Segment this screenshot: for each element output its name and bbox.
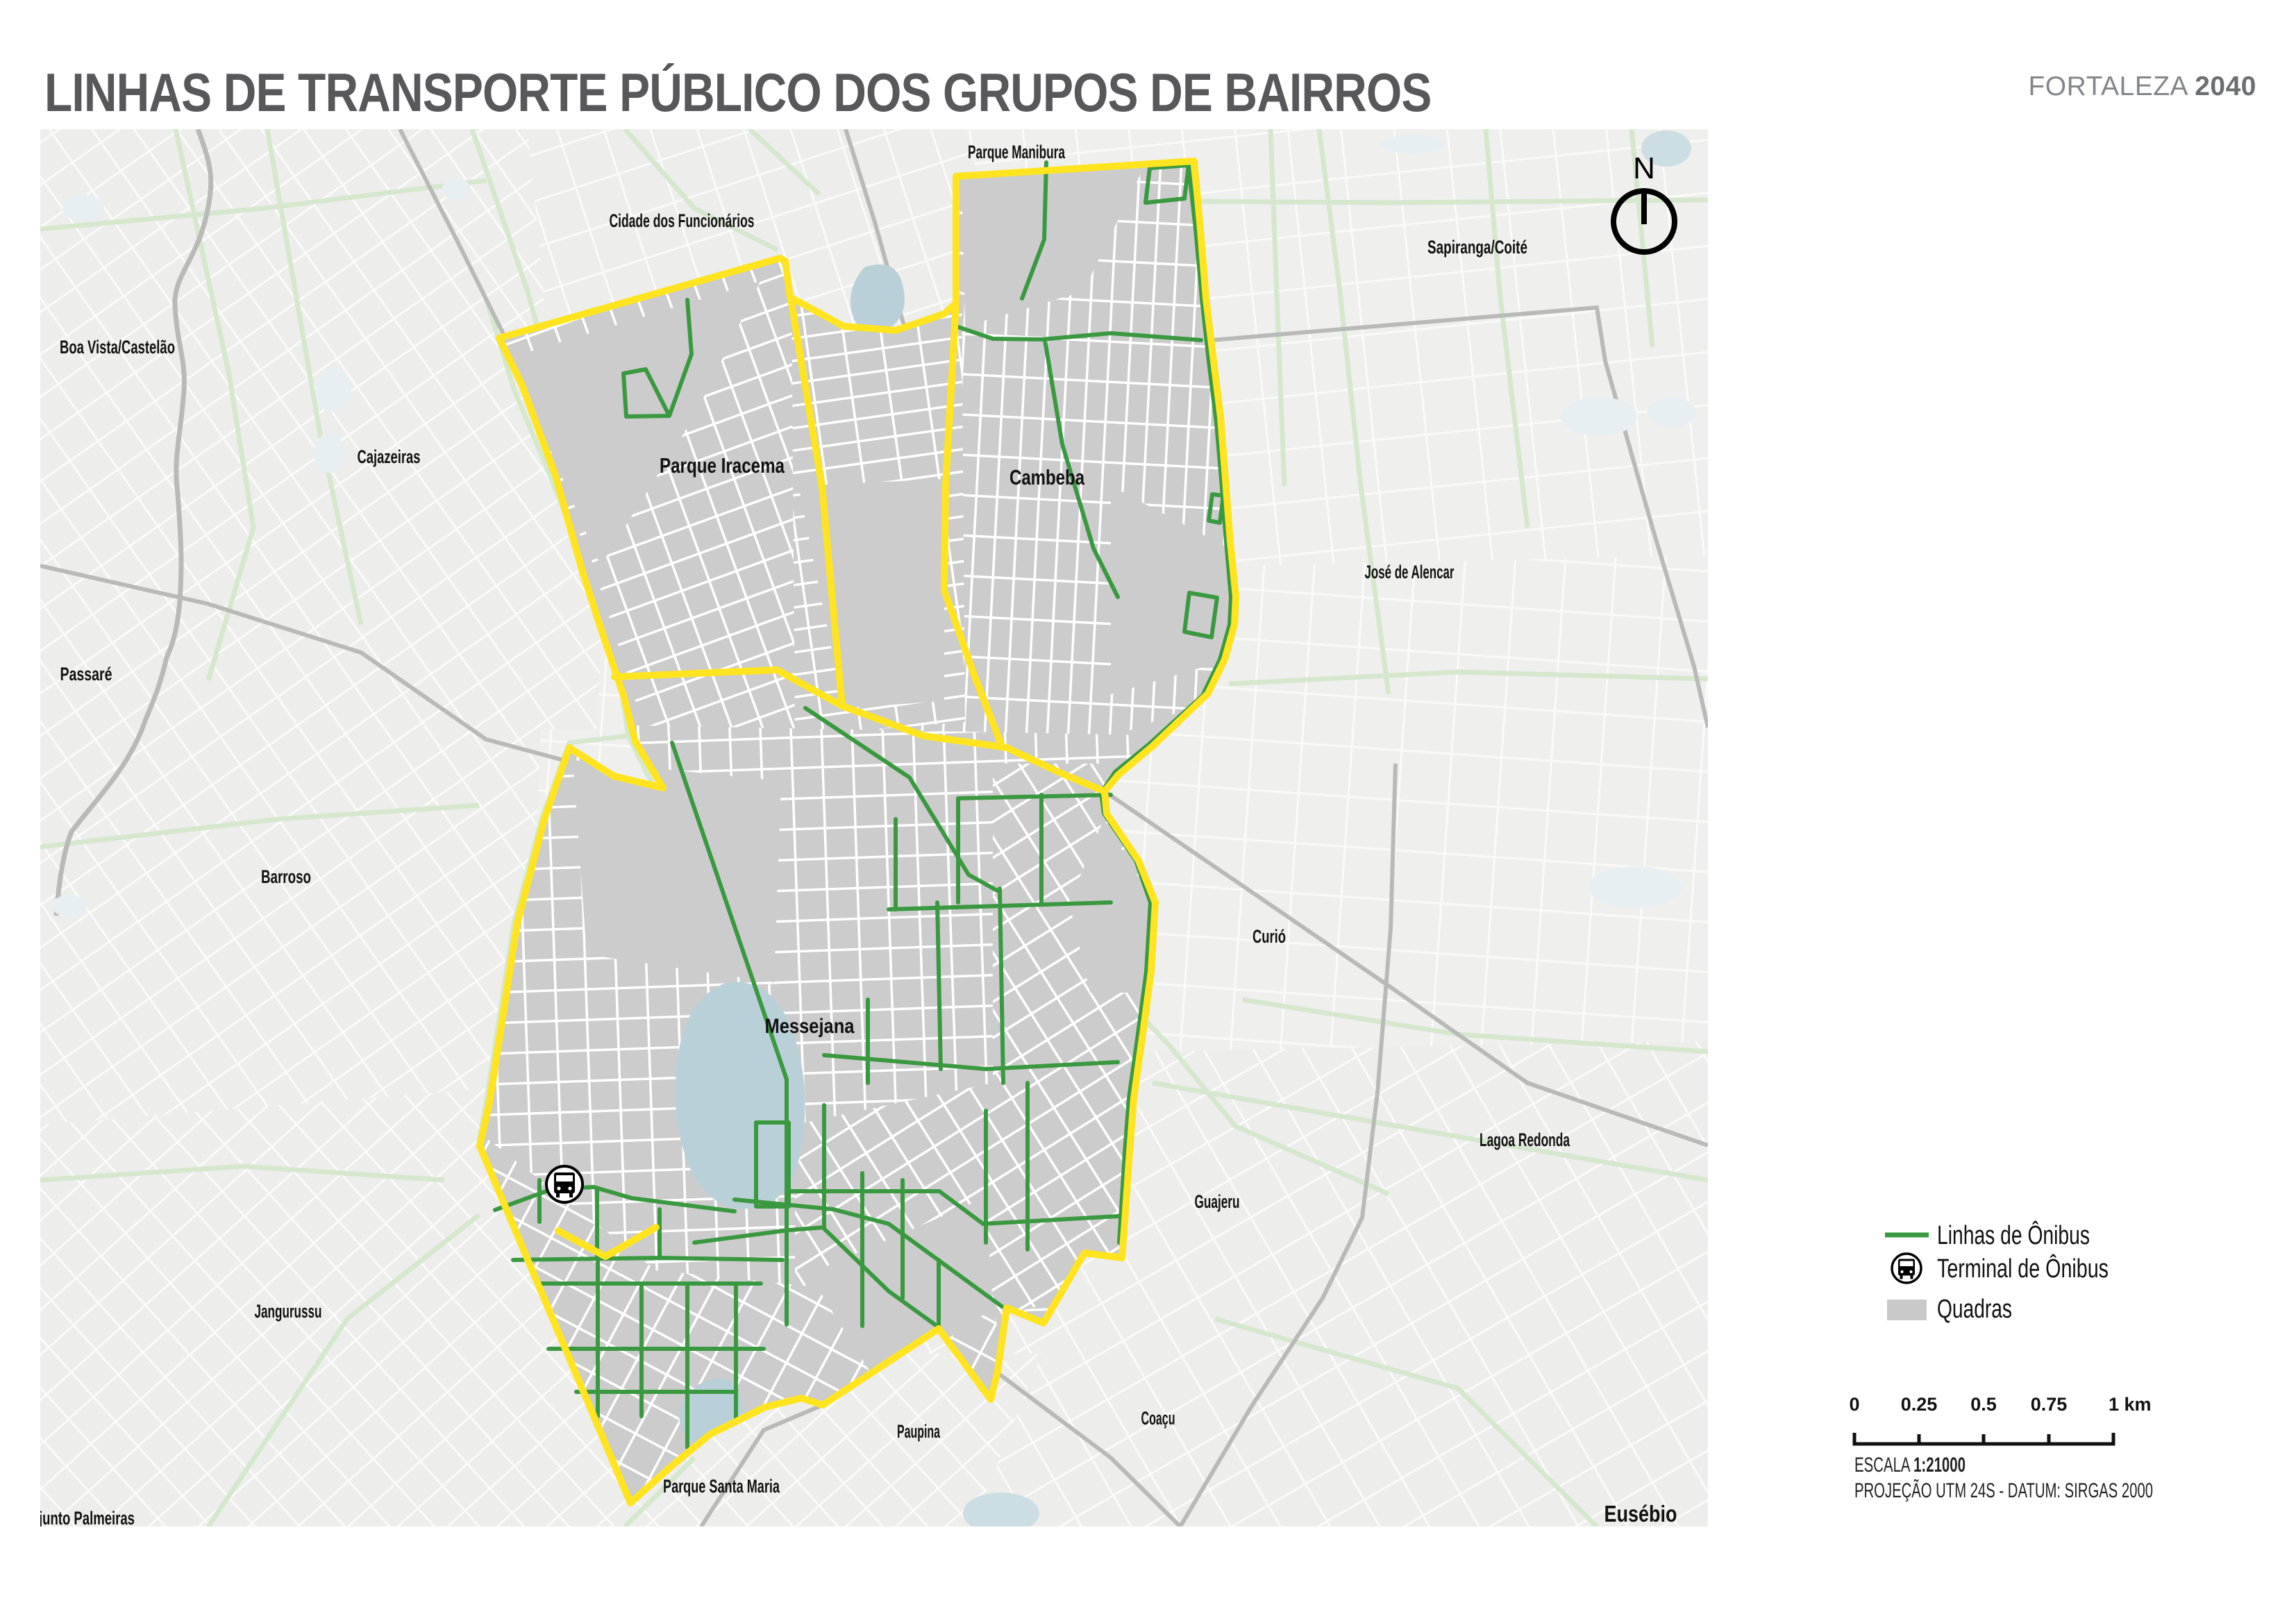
svg-text:Messejana: Messejana xyxy=(765,1015,855,1038)
svg-text:Parque Santa Maria: Parque Santa Maria xyxy=(663,1476,780,1497)
svg-text:Parque Iracema: Parque Iracema xyxy=(660,453,785,478)
svg-text:Curió: Curió xyxy=(1252,926,1286,947)
svg-text:0.75: 0.75 xyxy=(2031,1394,2068,1415)
svg-text:Sapiranga/Coité: Sapiranga/Coité xyxy=(1427,237,1527,258)
svg-text:Barroso: Barroso xyxy=(261,866,311,887)
svg-text:Linhas de Ônibus: Linhas de Ônibus xyxy=(1937,1220,2090,1250)
svg-text:1 km: 1 km xyxy=(2109,1394,2152,1415)
svg-text:0.25: 0.25 xyxy=(1901,1394,1938,1415)
svg-text:ESCALA 1:21000: ESCALA 1:21000 xyxy=(1854,1454,1966,1477)
svg-text:Cidade dos Funcionários: Cidade dos Funcionários xyxy=(610,210,755,231)
svg-text:N: N xyxy=(1633,151,1655,185)
svg-text:Paupina: Paupina xyxy=(897,1421,941,1442)
svg-text:Coaçu: Coaçu xyxy=(1141,1408,1175,1429)
svg-text:0.5: 0.5 xyxy=(1970,1394,1997,1415)
svg-text:Jangurussu: Jangurussu xyxy=(255,1301,322,1322)
svg-text:Lagoa Redonda: Lagoa Redonda xyxy=(1480,1129,1570,1150)
svg-text:Quadras: Quadras xyxy=(1937,1295,2012,1324)
svg-text:junto Palmeiras: junto Palmeiras xyxy=(40,1508,135,1527)
svg-text:Eusébio: Eusébio xyxy=(1604,1501,1677,1527)
svg-text:Passaré: Passaré xyxy=(60,664,112,684)
svg-text:0: 0 xyxy=(1849,1394,1859,1415)
svg-text:Cajazeiras: Cajazeiras xyxy=(358,446,421,467)
svg-text:PROJEÇÃO UTM 24S - DATUM: SIRG: PROJEÇÃO UTM 24S - DATUM: SIRGAS 2000 xyxy=(1854,1479,2153,1502)
svg-text:Cambeba: Cambeba xyxy=(1009,465,1085,489)
svg-text:Guajeru: Guajeru xyxy=(1195,1191,1240,1212)
svg-text:Boa Vista/Castelão: Boa Vista/Castelão xyxy=(60,337,175,358)
svg-text:José de Alencar: José de Alencar xyxy=(1365,562,1455,582)
svg-text:Parque Manibura: Parque Manibura xyxy=(968,142,1066,162)
svg-text:Terminal de Ônibus: Terminal de Ônibus xyxy=(1937,1253,2109,1284)
